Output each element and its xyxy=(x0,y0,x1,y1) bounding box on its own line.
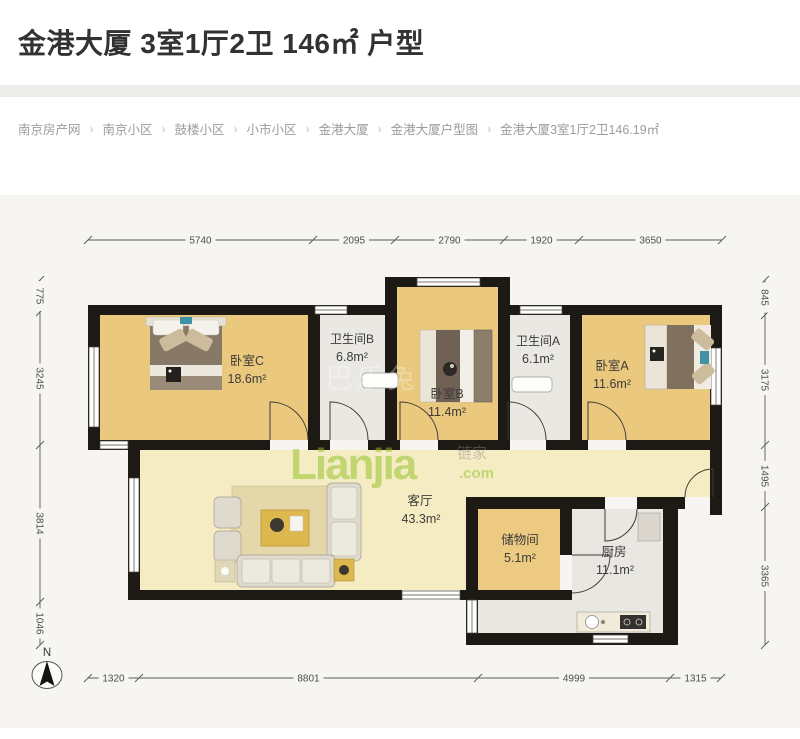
breadcrumb-link[interactable]: 南京房产网 xyxy=(18,119,81,138)
watermark-cjk: 链家 xyxy=(457,445,487,462)
dimension-label: 3365 xyxy=(759,565,770,588)
watermark-brand: Lianjia xyxy=(290,440,418,489)
dimension-label: 1046 xyxy=(34,612,45,635)
room-area-label: 6.1m² xyxy=(522,352,554,366)
dimension-label: 1320 xyxy=(102,674,125,685)
watermark-faint: 巴乐兔 xyxy=(326,364,419,394)
floorplan-section: 巴乐兔 Lianjia .com 链家 卧室C 18.6m² 卫生间B 6.8m… xyxy=(0,195,800,728)
header-divider xyxy=(0,85,800,97)
room-area-label: 43.3m² xyxy=(402,512,441,526)
breadcrumb-separator: › xyxy=(487,122,491,136)
breadcrumb-separator: › xyxy=(90,122,94,136)
breadcrumb-separator: › xyxy=(234,122,238,136)
breadcrumb-link[interactable]: 鼓楼小区 xyxy=(175,119,225,138)
breadcrumb-separator: › xyxy=(306,122,310,136)
breadcrumb-link[interactable]: 金港大厦 xyxy=(319,119,369,138)
dimension-line xyxy=(84,674,725,682)
dimension-label: 3814 xyxy=(34,512,45,535)
dimension-label: 3245 xyxy=(34,367,45,390)
room-name-label: 储物间 xyxy=(501,532,539,547)
dimension-label: 1495 xyxy=(759,465,770,488)
dimension-label: 5740 xyxy=(189,236,212,247)
dimension-label: 845 xyxy=(759,289,770,306)
room-name-label: 卧室A xyxy=(595,358,629,373)
breadcrumb-link[interactable]: 南京小区 xyxy=(103,119,153,138)
room-name-label: 卫生间A xyxy=(516,334,560,348)
watermark-suffix: .com xyxy=(459,465,494,482)
room-name-label: 卧室C xyxy=(230,353,264,368)
page-title: 金港大厦 3室1厅2卫 146㎡ 户型 xyxy=(18,22,424,62)
dimension-line xyxy=(36,276,44,649)
breadcrumb-link[interactable]: 金港大厦户型图 xyxy=(391,119,479,138)
dimension-label: 3175 xyxy=(759,369,770,392)
dimension-label: 1315 xyxy=(684,674,707,685)
room-area-label: 11.4m² xyxy=(428,405,466,419)
breadcrumb: 南京房产网›南京小区›鼓楼小区›小市小区›金港大厦›金港大厦户型图›金港大厦3室… xyxy=(18,119,788,138)
dimension-label: 3650 xyxy=(639,236,662,247)
floorplan-image: 巴乐兔 Lianjia .com 链家 卧室C 18.6m² 卫生间B 6.8m… xyxy=(0,195,800,728)
room-name-label: 客厅 xyxy=(407,493,432,508)
north-arrow-icon: N xyxy=(32,647,62,689)
bed-bedroom-a xyxy=(645,325,716,389)
room-area-label: 18.6m² xyxy=(228,372,267,386)
dimension-label: 775 xyxy=(34,288,45,305)
room-name-label: 卧室B xyxy=(430,386,463,401)
dimension-label: 1920 xyxy=(530,236,553,247)
breadcrumb-separator: › xyxy=(378,122,382,136)
breadcrumb-separator: › xyxy=(162,122,166,136)
bed-bedroom-c xyxy=(146,317,226,390)
breadcrumb-link[interactable]: 小市小区 xyxy=(247,119,297,138)
room-area-label: 6.8m² xyxy=(336,350,368,364)
compass-label: N xyxy=(43,647,51,659)
room-area-label: 5.1m² xyxy=(504,551,536,565)
dimension-label: 2095 xyxy=(343,236,366,247)
breadcrumb-current: 金港大厦3室1厅2卫146.19㎡ xyxy=(500,119,659,138)
room-name-label: 卫生间B xyxy=(330,332,374,346)
room-area-label: 11.1m² xyxy=(596,563,634,577)
dimension-label: 2790 xyxy=(438,236,461,247)
dimension-label: 4999 xyxy=(563,674,586,685)
room-area-label: 11.6m² xyxy=(593,377,631,391)
dimension-line xyxy=(84,236,726,244)
room-name-label: 厨房 xyxy=(601,544,626,559)
dimension-label: 8801 xyxy=(297,674,320,685)
